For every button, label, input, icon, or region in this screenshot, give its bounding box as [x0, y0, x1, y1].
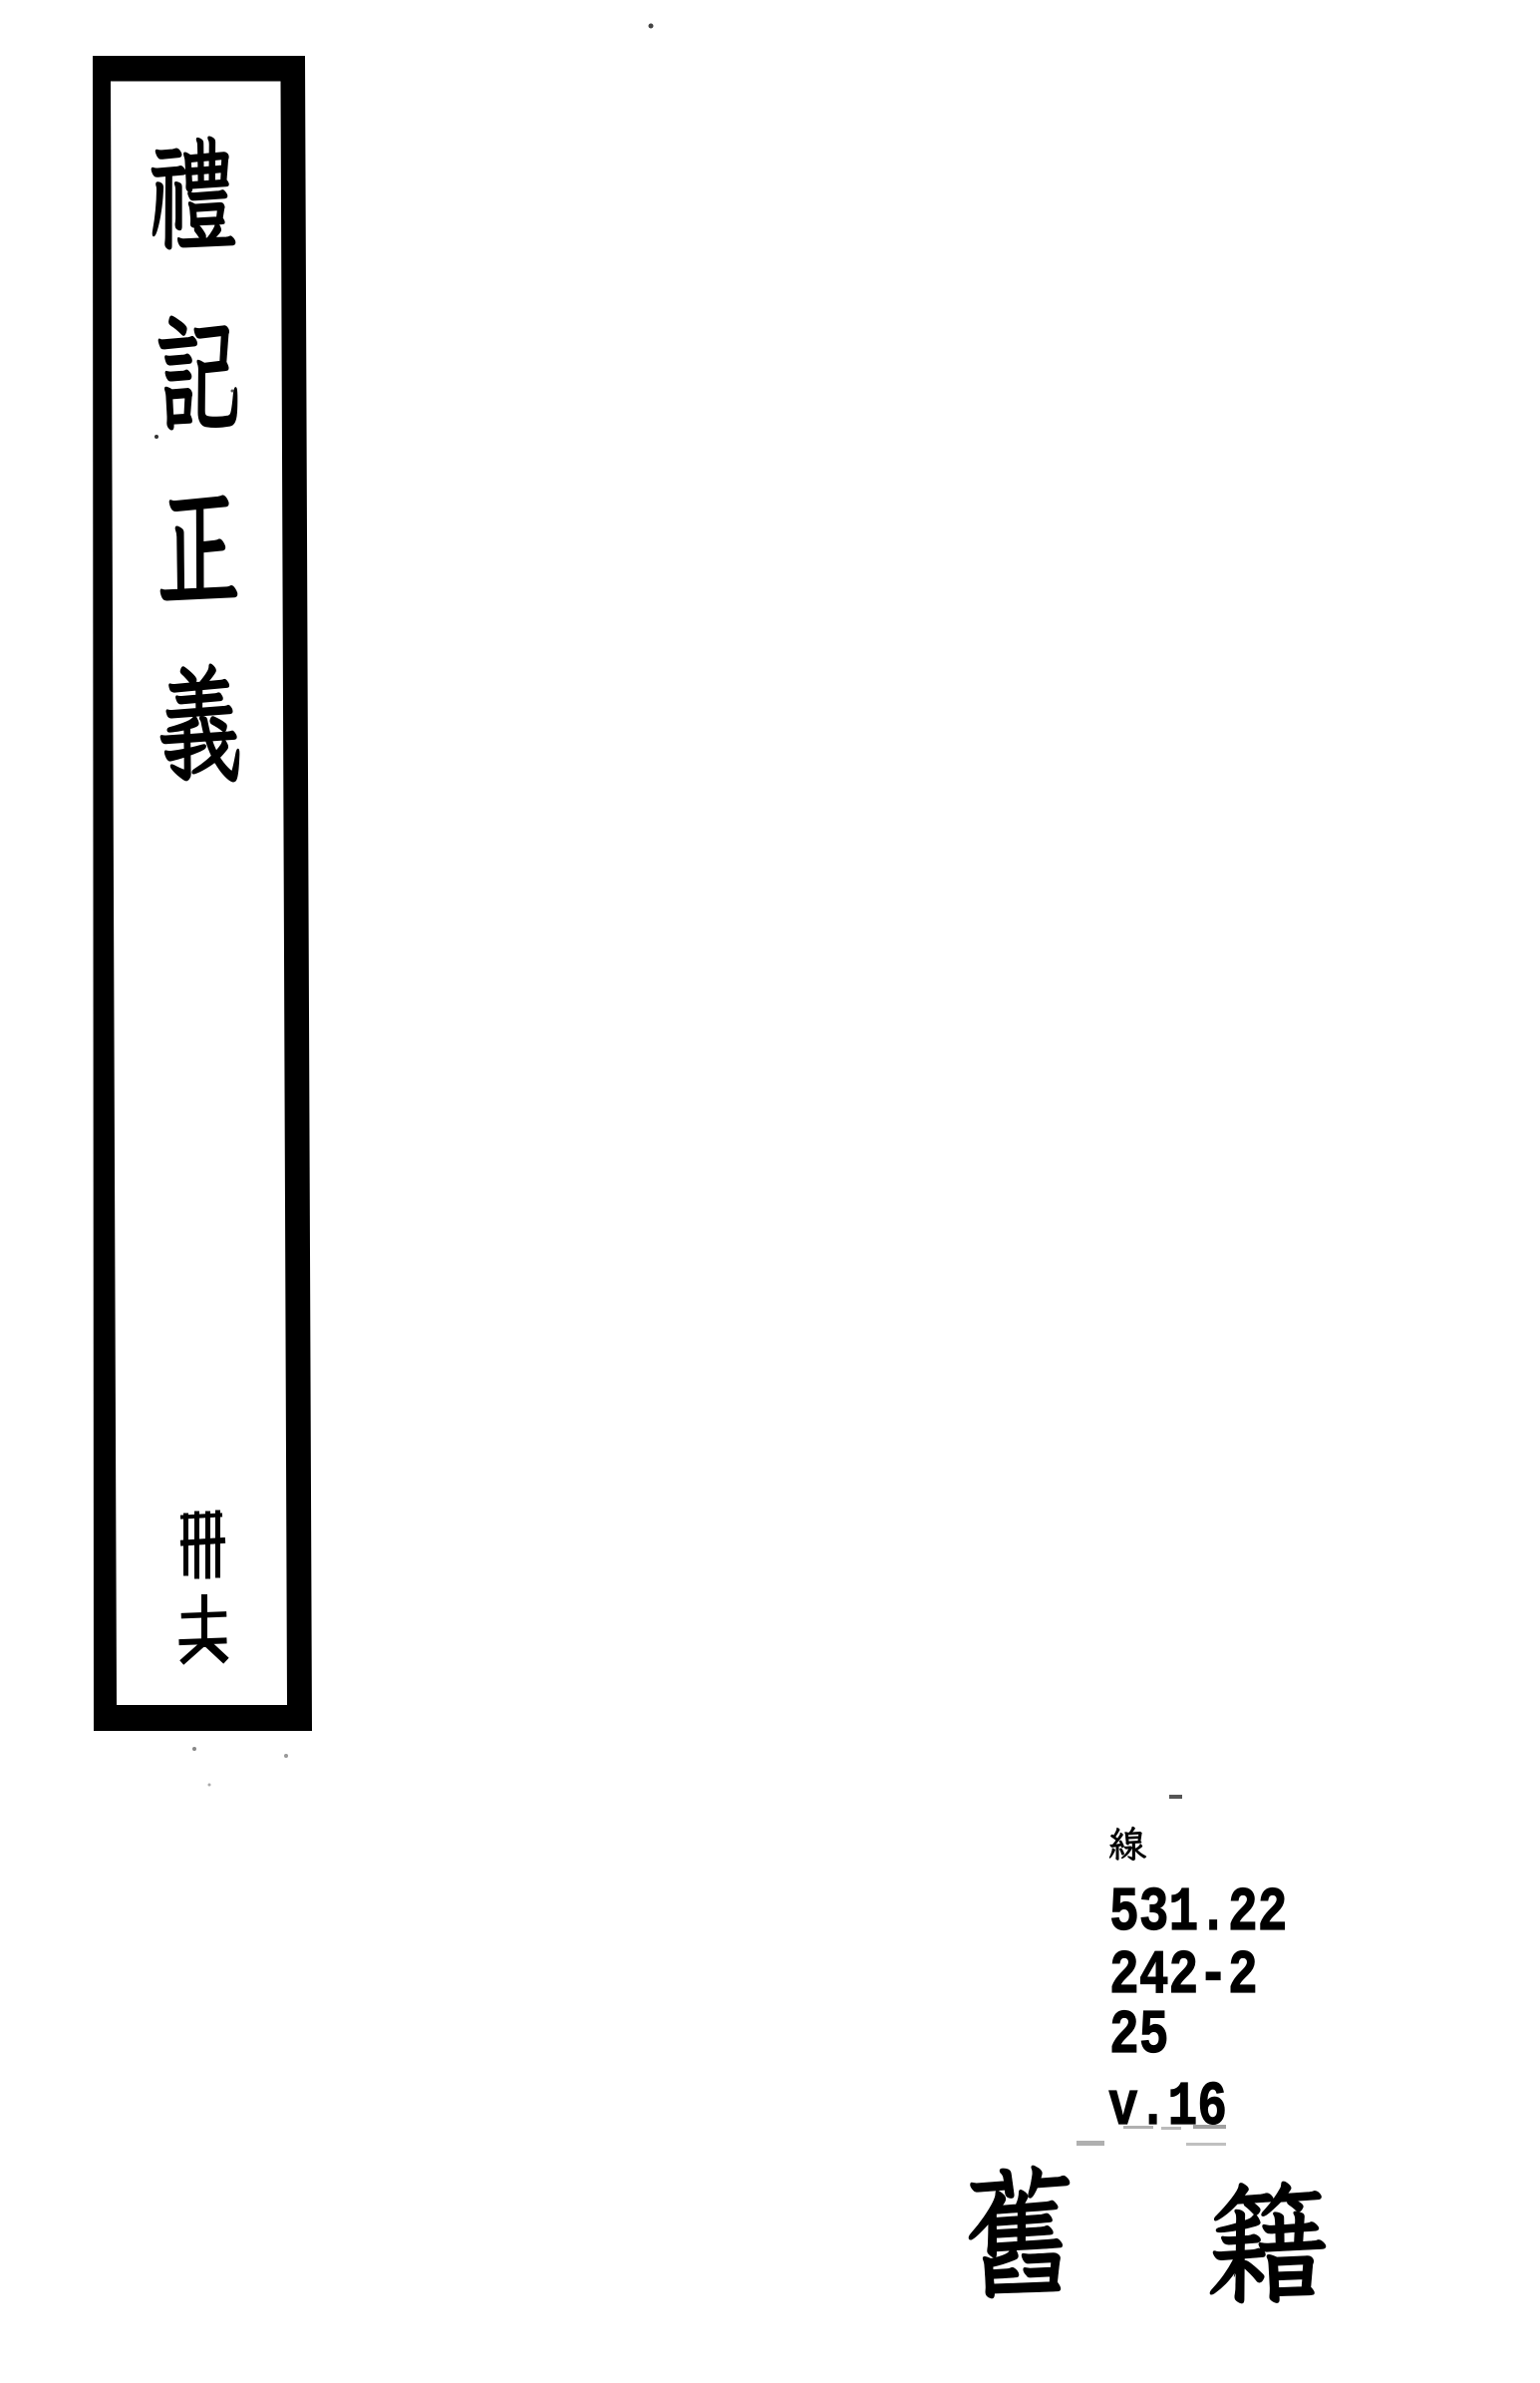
svg-text:531.22: 531.22 [1109, 1877, 1288, 1948]
svg-text:25: 25 [1109, 2000, 1169, 2071]
svg-text:v.16: v.16 [1108, 2072, 1227, 2143]
